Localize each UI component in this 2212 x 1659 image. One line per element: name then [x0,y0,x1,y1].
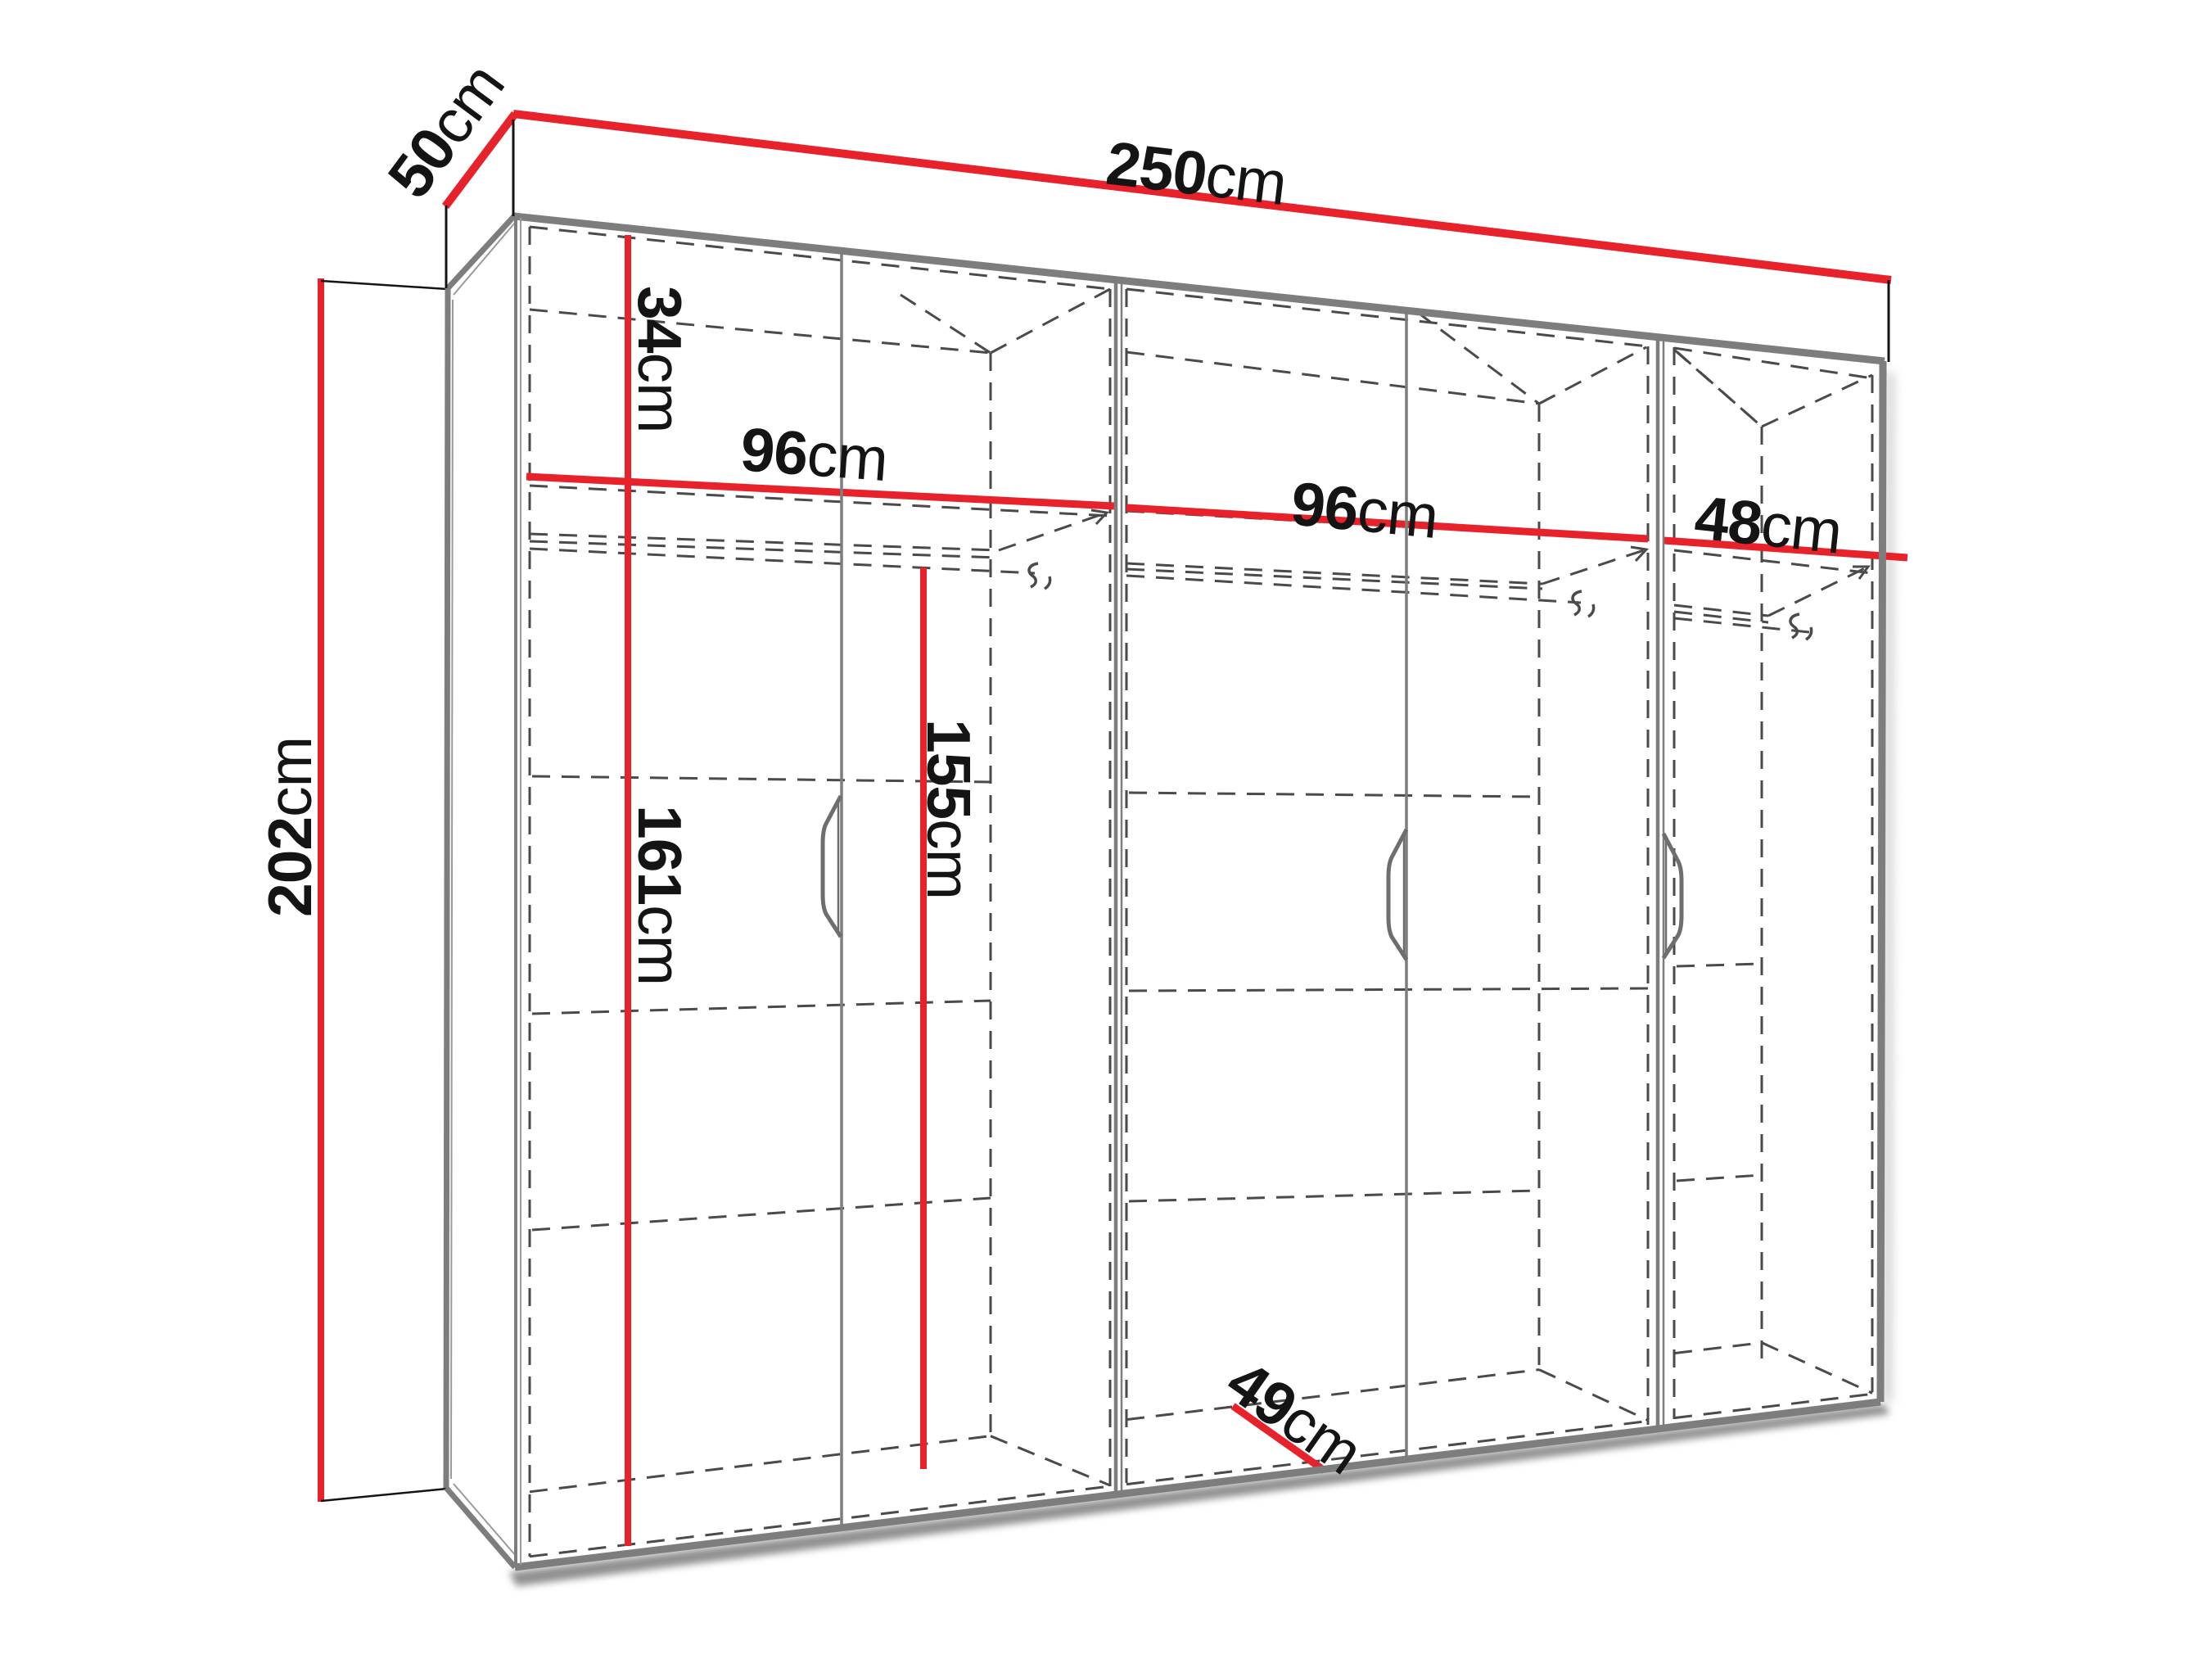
svg-text:96cm: 96cm [738,414,890,494]
svg-text:34cm: 34cm [625,286,694,432]
svg-text:96cm: 96cm [1288,468,1441,551]
svg-text:202cm: 202cm [255,737,324,917]
svg-text:161cm: 161cm [625,805,694,985]
svg-text:155cm: 155cm [914,719,983,899]
